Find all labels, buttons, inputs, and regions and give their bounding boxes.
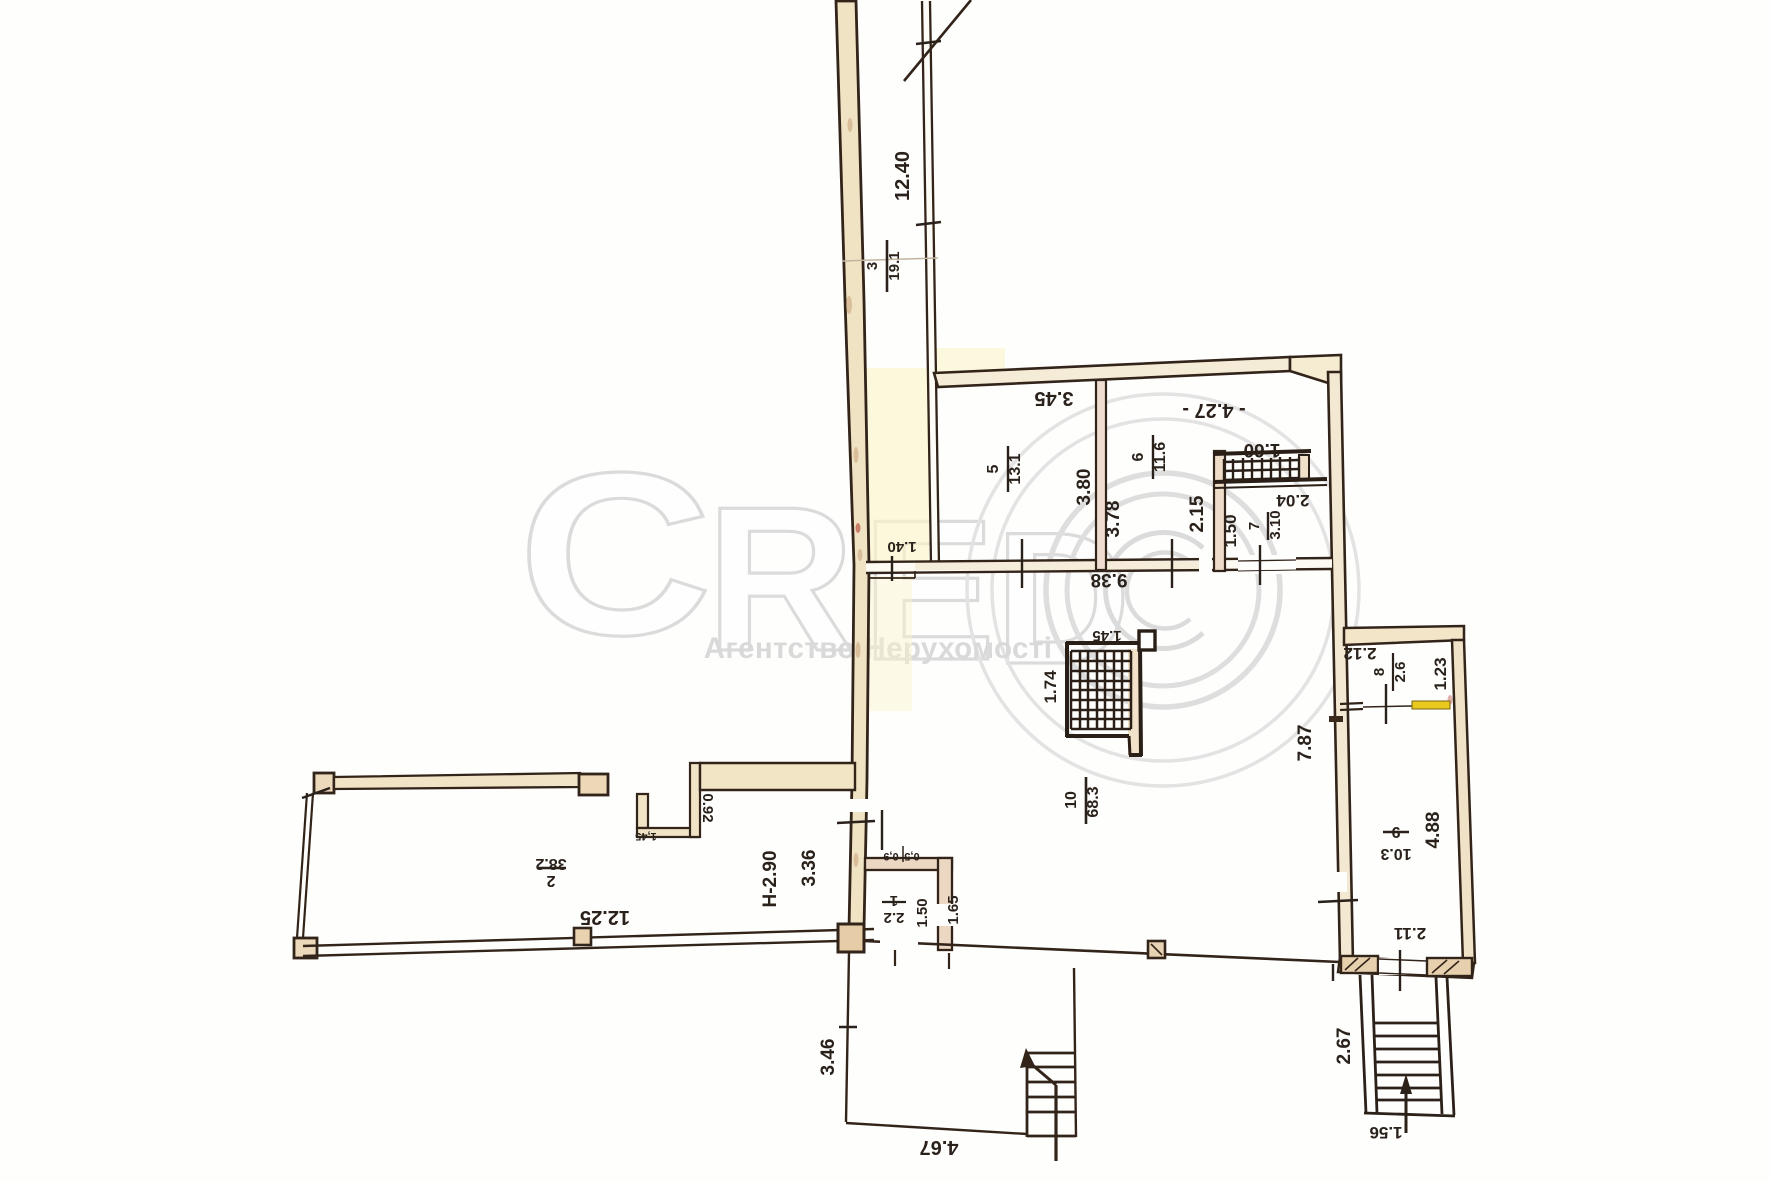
svg-text:38.2: 38.2 xyxy=(535,855,566,872)
svg-text:3.10: 3.10 xyxy=(1267,510,1284,539)
svg-text:19.1: 19.1 xyxy=(886,251,903,280)
svg-text:H-2.90: H-2.90 xyxy=(760,850,781,907)
svg-text:10: 10 xyxy=(1063,791,1080,809)
svg-text:8: 8 xyxy=(1371,668,1388,676)
svg-text:1,45: 1,45 xyxy=(635,830,656,842)
svg-text:1.60: 1.60 xyxy=(1244,439,1281,460)
svg-text:6: 6 xyxy=(1130,452,1147,461)
svg-text:0.92: 0.92 xyxy=(699,793,716,822)
svg-text:2.15: 2.15 xyxy=(1187,495,1208,532)
svg-text:0,5: 0,5 xyxy=(904,850,919,862)
svg-text:1.74: 1.74 xyxy=(1041,670,1060,704)
svg-text:2.04: 2.04 xyxy=(1276,491,1310,510)
svg-text:1.50: 1.50 xyxy=(914,898,931,927)
svg-text:7.87: 7.87 xyxy=(1295,725,1316,762)
svg-text:2.67: 2.67 xyxy=(1334,1028,1355,1065)
svg-text:68.3: 68.3 xyxy=(1085,786,1102,817)
svg-text:5: 5 xyxy=(985,464,1002,473)
svg-text:2.2: 2.2 xyxy=(884,909,905,926)
svg-text:2.6: 2.6 xyxy=(1392,662,1409,683)
svg-text:1.56: 1.56 xyxy=(1369,1123,1402,1142)
svg-text:9: 9 xyxy=(1391,823,1400,840)
svg-text:1.65: 1.65 xyxy=(945,895,962,924)
svg-text:1.45: 1.45 xyxy=(1092,627,1121,644)
svg-text:3.45: 3.45 xyxy=(1035,387,1074,409)
svg-text:11.6: 11.6 xyxy=(1152,442,1169,472)
svg-text:C: C xyxy=(518,425,712,684)
svg-text:1.23: 1.23 xyxy=(1431,657,1450,690)
svg-text:12.25: 12.25 xyxy=(580,906,630,928)
svg-text:3.80: 3.80 xyxy=(1074,469,1095,506)
svg-text:2: 2 xyxy=(546,872,555,889)
svg-text:7: 7 xyxy=(1246,522,1263,530)
svg-text:10.3: 10.3 xyxy=(1380,845,1411,862)
svg-text:3.78: 3.78 xyxy=(1103,501,1124,538)
svg-text:- 4.27 -: - 4.27 - xyxy=(1182,399,1245,421)
svg-text:1.50: 1.50 xyxy=(1221,514,1240,547)
svg-text:0,9: 0,9 xyxy=(883,850,898,862)
svg-text:2.11: 2.11 xyxy=(1394,924,1426,943)
svg-text:4.67: 4.67 xyxy=(920,1136,959,1158)
svg-text:3: 3 xyxy=(864,262,881,270)
svg-text:2.12: 2.12 xyxy=(1343,644,1376,663)
svg-text:9.38: 9.38 xyxy=(1091,569,1128,590)
svg-text:1: 1 xyxy=(890,892,898,909)
svg-text:1.40: 1.40 xyxy=(887,538,916,555)
svg-text:3.36: 3.36 xyxy=(799,850,820,887)
svg-text:4.88: 4.88 xyxy=(1423,812,1444,849)
svg-text:3.46: 3.46 xyxy=(818,1039,839,1076)
svg-text:13.1: 13.1 xyxy=(1007,453,1024,484)
svg-text:12.40: 12.40 xyxy=(892,151,914,201)
